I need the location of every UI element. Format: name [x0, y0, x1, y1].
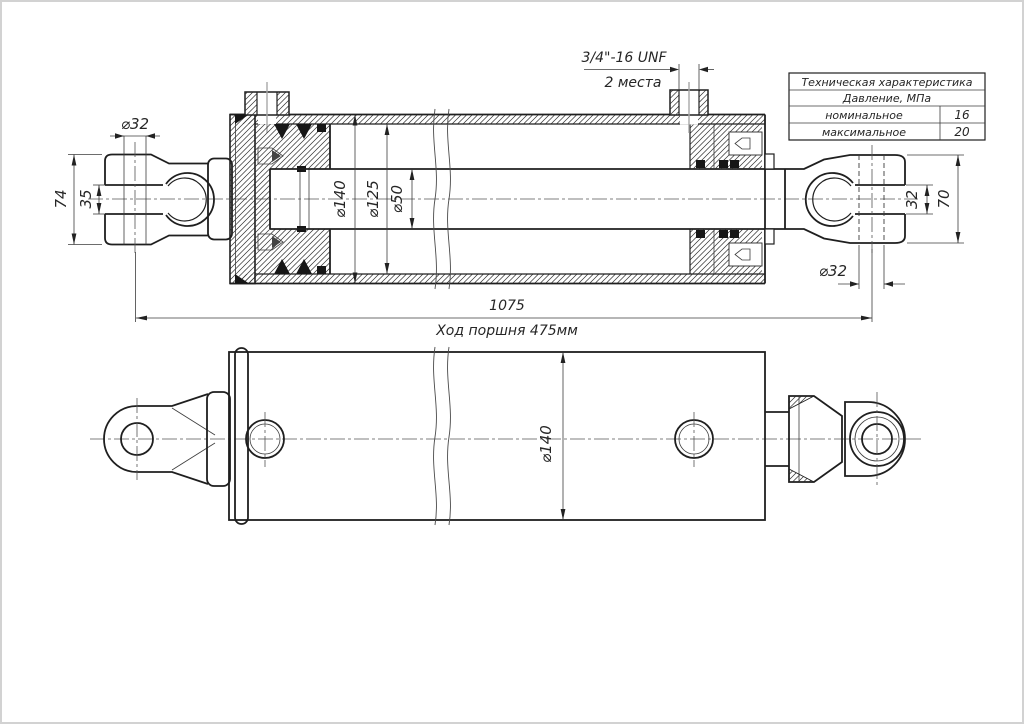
dim-barrel-od-plan: ⌀140	[537, 425, 555, 463]
spec-table-subtitle: Давление, МПа	[842, 92, 931, 105]
dim-eye-hole-right: ⌀32	[819, 262, 847, 280]
dim-bore: ⌀125	[364, 180, 382, 218]
dim-rod: ⌀50	[388, 185, 406, 213]
left-clevis	[105, 136, 232, 255]
dim-barrel-od: ⌀140	[331, 180, 349, 218]
dim-slot-width-right: 32	[903, 190, 921, 209]
section-view: ⌀32 74 35	[52, 50, 964, 339]
thread-callout: 3/4"-16 UNF 2 места	[581, 50, 714, 91]
thread-places-label: 2 места	[605, 75, 662, 91]
rear-cap	[230, 115, 255, 284]
spec-row-nominal-value: 16	[954, 108, 970, 122]
drawing-sheet: ⌀32 74 35	[0, 0, 1024, 724]
diameter-dimensions: ⌀140 ⌀125 ⌀50	[331, 115, 412, 284]
spec-table: Техническая характеристика Давление, МПа…	[789, 73, 985, 140]
dim-eye-hole-left: ⌀32	[121, 115, 149, 133]
stroke-note: Ход поршня 475мм	[435, 323, 578, 339]
hydraulic-cylinder-technical-drawing: ⌀32 74 35	[2, 2, 1024, 724]
dim-slot-width-left: 35	[77, 189, 95, 208]
plan-barrel: ⌀140	[229, 347, 765, 525]
spec-table-title: Техническая характеристика	[801, 76, 972, 89]
thread-spec-label: 3/4"-16 UNF	[581, 50, 667, 66]
plan-view: ⌀140	[90, 347, 922, 525]
left-dimensions: ⌀32 74 35	[52, 115, 160, 245]
dim-clevis-height-right: 70	[935, 189, 953, 208]
plan-right-eye	[765, 392, 905, 488]
spec-row-maximum-value: 20	[954, 125, 970, 139]
dim-overall-length: 1075	[489, 298, 525, 314]
spec-row-nominal-label: номинальное	[825, 109, 903, 122]
spec-row-maximum-label: максимальное	[822, 126, 906, 139]
dim-clevis-height-left: 74	[52, 189, 70, 208]
